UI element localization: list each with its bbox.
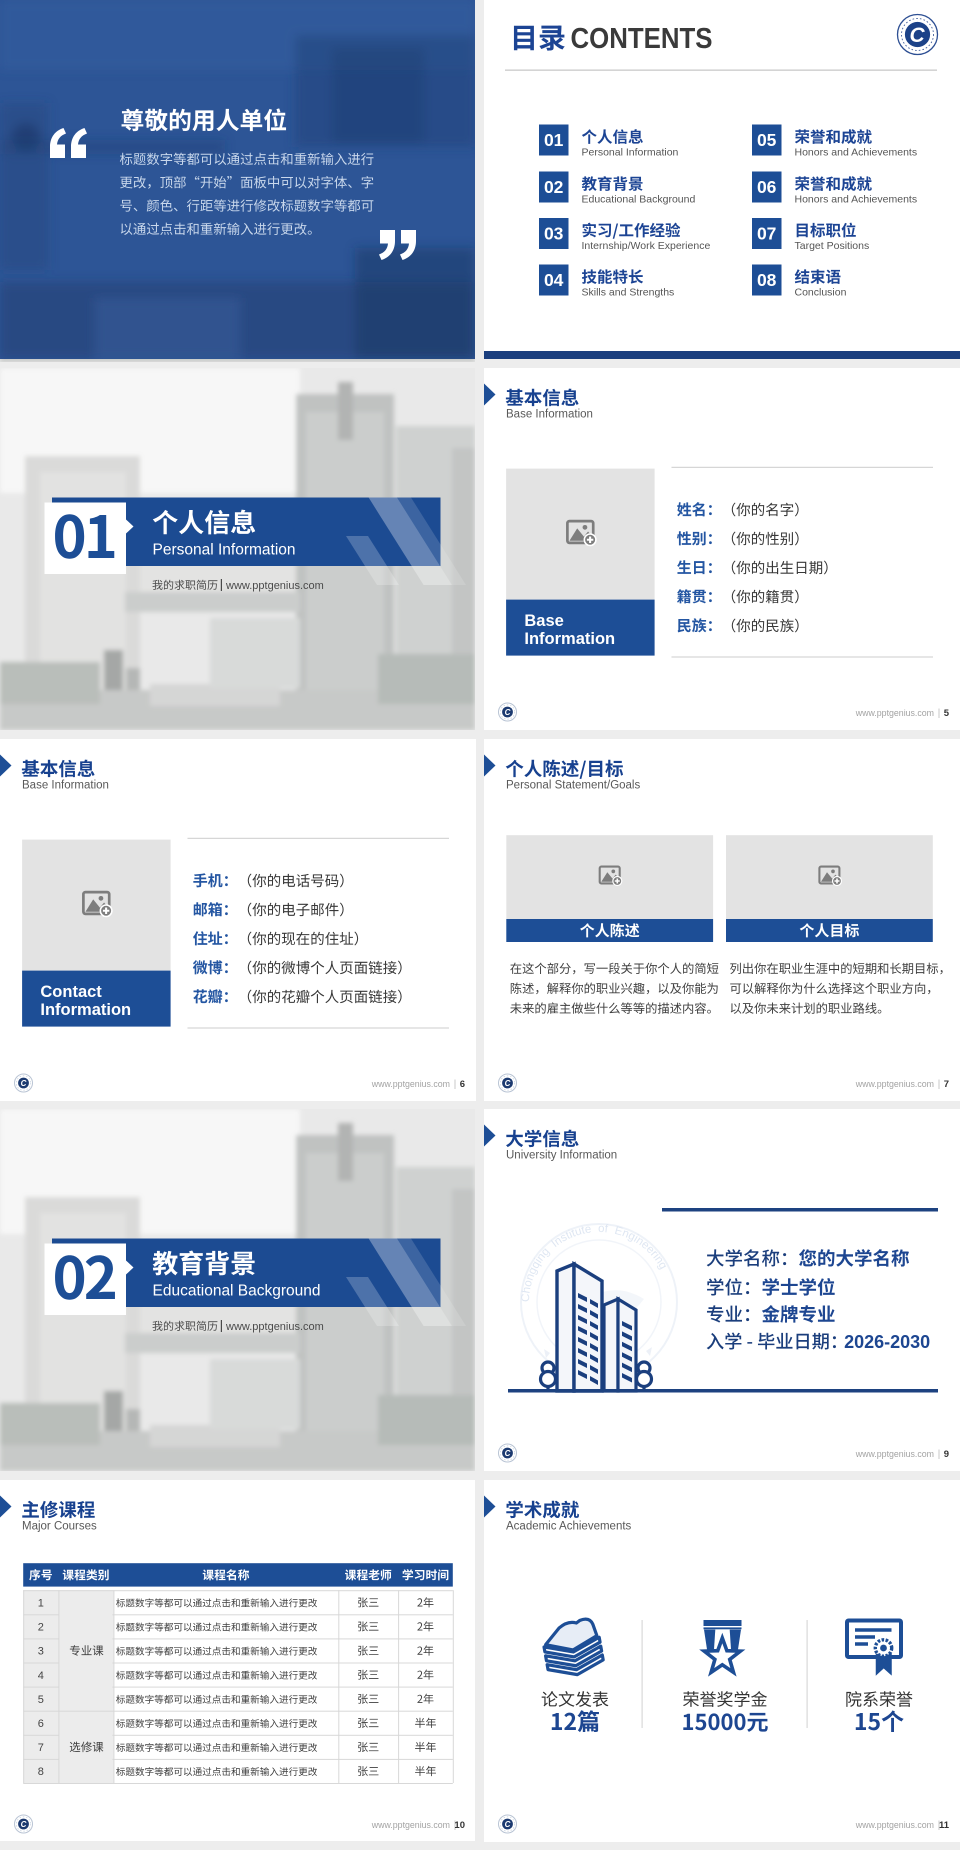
svg-text:6: 6 (460, 1079, 465, 1090)
svg-text:8: 8 (38, 1766, 44, 1778)
svg-text:9: 9 (944, 1449, 949, 1460)
svg-text:www.pptgenius.com: www.pptgenius.com (371, 1820, 450, 1830)
svg-text:4: 4 (38, 1670, 44, 1682)
svg-text:C: C (505, 1449, 511, 1458)
svg-text:2026-2030: 2026-2030 (844, 1332, 930, 1352)
svg-text:C: C (505, 1079, 511, 1088)
svg-text:Educational Background: Educational Background (582, 194, 696, 206)
svg-text:07: 07 (757, 224, 776, 244)
svg-text:10: 10 (454, 1820, 465, 1831)
svg-text:www.pptgenius.com: www.pptgenius.com (225, 1321, 324, 1333)
svg-text:www.pptgenius.com: www.pptgenius.com (855, 1449, 934, 1459)
svg-text:C: C (910, 24, 926, 47)
svg-text:Educational Background: Educational Background (153, 1283, 321, 1300)
svg-text:5: 5 (38, 1694, 44, 1706)
svg-text:C: C (21, 1079, 27, 1088)
svg-text:C: C (21, 1820, 27, 1829)
svg-text:05: 05 (757, 130, 777, 150)
svg-text:3: 3 (38, 1646, 44, 1658)
svg-text:CONTENTS: CONTENTS (571, 23, 713, 55)
svg-text:Personal Information: Personal Information (153, 542, 296, 559)
svg-text:www.pptgenius.com: www.pptgenius.com (855, 1079, 934, 1089)
svg-text:Target Positions: Target Positions (795, 240, 870, 252)
svg-text:1: 1 (38, 1597, 44, 1609)
svg-text:www.pptgenius.com: www.pptgenius.com (225, 580, 324, 592)
svg-text:www.pptgenius.com: www.pptgenius.com (855, 1820, 934, 1830)
svg-text:03: 03 (544, 224, 564, 244)
svg-text:Skills and Strengths: Skills and Strengths (582, 287, 675, 299)
svg-text:6: 6 (38, 1718, 44, 1730)
svg-text:Information: Information (40, 1001, 131, 1019)
svg-text:11: 11 (939, 1820, 950, 1831)
svg-text:2: 2 (38, 1622, 44, 1634)
svg-text:08: 08 (757, 270, 777, 290)
svg-text:Internship/Work Experience: Internship/Work Experience (582, 240, 711, 252)
svg-text:Major Courses: Major Courses (22, 1521, 97, 1533)
svg-text:Personal Information: Personal Information (582, 147, 679, 159)
svg-text:www.pptgenius.com: www.pptgenius.com (371, 1079, 450, 1089)
svg-text:Base Information: Base Information (506, 409, 593, 421)
svg-text:5: 5 (944, 708, 950, 719)
svg-text:www.pptgenius.com: www.pptgenius.com (855, 708, 934, 718)
svg-text:Honors and Achievements: Honors and Achievements (795, 194, 918, 206)
svg-text:University Information: University Information (506, 1150, 617, 1162)
svg-text:02: 02 (544, 177, 564, 197)
svg-text:C: C (505, 708, 511, 717)
svg-text:7: 7 (944, 1079, 949, 1090)
svg-text:Information: Information (524, 630, 615, 648)
svg-text:Base Information: Base Information (22, 780, 109, 792)
svg-text:Academic Achievements: Academic Achievements (506, 1521, 632, 1533)
svg-text:06: 06 (757, 177, 777, 197)
svg-text:7: 7 (38, 1742, 44, 1754)
svg-text:C: C (505, 1820, 511, 1829)
svg-text:Conclusion: Conclusion (795, 287, 847, 299)
svg-text:Contact: Contact (40, 983, 102, 1001)
svg-text:04: 04 (544, 270, 564, 290)
svg-text:Personal Statement/Goals: Personal Statement/Goals (506, 780, 640, 792)
svg-text:Honors and Achievements: Honors and Achievements (795, 147, 918, 159)
svg-text:Base: Base (524, 612, 563, 630)
svg-text:01: 01 (544, 130, 564, 150)
